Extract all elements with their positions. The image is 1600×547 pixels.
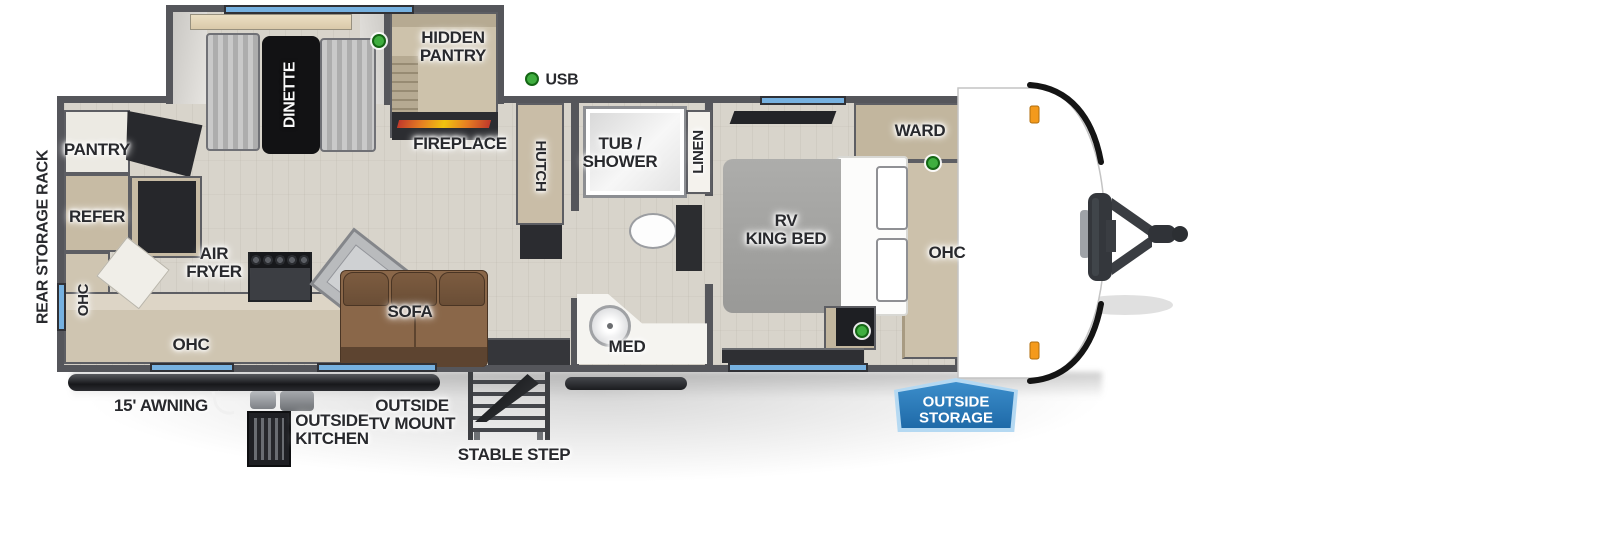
window xyxy=(150,363,234,372)
bedroom-tv xyxy=(730,111,837,124)
tub-shower xyxy=(583,106,687,198)
pantry-cabinet xyxy=(64,110,130,174)
grill-grate xyxy=(254,418,284,460)
dinette-table xyxy=(262,36,320,154)
linen-closet xyxy=(686,110,712,194)
usb-legend-label: USB xyxy=(546,73,579,90)
sofa-back-cushion xyxy=(343,272,389,306)
stable-step xyxy=(468,372,550,440)
refrigerator xyxy=(138,181,196,253)
vanity-sink-drain xyxy=(607,323,613,329)
front-cap-and-hitch xyxy=(930,70,1200,400)
usb-indicator xyxy=(855,324,869,338)
awning-bar xyxy=(68,374,440,391)
bathroom-wall-left-upper xyxy=(571,103,579,211)
refrigerator-cabinet xyxy=(64,174,130,252)
a-frame-bar xyxy=(1112,235,1152,275)
a-frame-cross xyxy=(1106,220,1116,252)
sofa xyxy=(340,270,488,367)
hidden-pantry-shelf-top xyxy=(392,14,496,27)
fireplace-flame xyxy=(397,120,491,128)
hutch-base xyxy=(520,225,562,259)
usb-indicator xyxy=(372,34,386,48)
king-bed xyxy=(723,159,841,313)
dinette-bench-left xyxy=(206,33,260,151)
dinette-bench-right xyxy=(320,38,376,152)
outside-kitchen-component xyxy=(250,391,276,409)
stable-step-foot xyxy=(537,432,543,440)
usb-indicator xyxy=(525,72,539,86)
outside-tv-mount-bracket xyxy=(565,377,687,390)
hidden-pantry-steps xyxy=(392,56,418,120)
range-burners xyxy=(250,252,310,268)
marker-light xyxy=(1030,342,1039,359)
hitch-coupler xyxy=(1148,225,1176,243)
rear-storage-rack-label: REAR STORAGE RACK xyxy=(36,150,53,324)
pillow xyxy=(876,166,908,230)
sofa-back-cushion xyxy=(391,272,437,306)
floorplan-stage: OUTSIDE STORAGE REAR STORAGE RACK PANTRY… xyxy=(0,0,1600,547)
bathroom-door xyxy=(676,205,702,271)
sofa-seat-divider xyxy=(414,307,416,347)
hitch-coupler-end xyxy=(1172,226,1188,242)
a-frame-bar xyxy=(1112,198,1152,238)
marker-light xyxy=(1030,106,1039,123)
window xyxy=(760,96,846,105)
dinette-shelf xyxy=(190,14,352,30)
window xyxy=(317,363,437,372)
sofa-back-cushion xyxy=(439,272,485,306)
tub-shower-glass xyxy=(590,113,680,191)
tongue-jack-highlight xyxy=(1092,198,1099,276)
entry-door-mat xyxy=(488,338,570,365)
usb-indicator xyxy=(926,156,940,170)
bedroom-bench xyxy=(722,348,864,363)
window xyxy=(57,283,66,331)
window xyxy=(728,363,868,372)
outside-storage-badge-inner xyxy=(898,382,1014,428)
hutch-cabinet xyxy=(516,103,564,225)
window xyxy=(224,5,414,14)
stable-step-ramp xyxy=(475,374,539,422)
toilet xyxy=(629,213,677,249)
stable-step-foot xyxy=(474,432,480,440)
outside-kitchen-grill xyxy=(247,411,291,467)
pillow xyxy=(876,238,908,302)
outside-kitchen-component xyxy=(280,391,314,411)
